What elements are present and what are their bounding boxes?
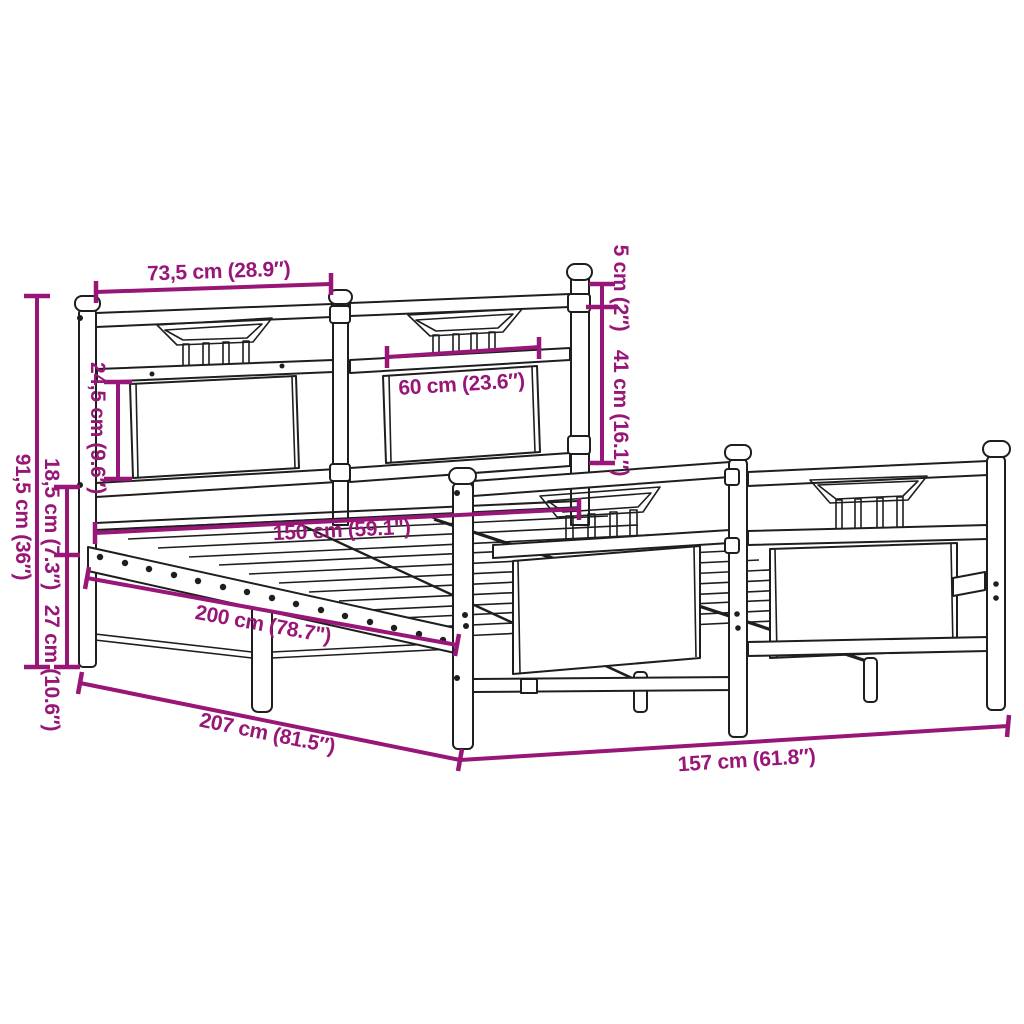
dim-label-outer-width: 157 cm (61.8″) — [677, 745, 816, 777]
diagram-canvas: 73,5 cm (28.9″) 24,5 cm (9.6″) 91,5 cm (… — [0, 0, 1024, 1024]
dim-headboard-bay-width: 73,5 cm (28.9″) — [96, 258, 331, 303]
dim-label-side-rail-height: 18,5 cm (7.3″) — [40, 458, 63, 590]
support-leg — [864, 658, 877, 702]
dim-label-headboard-bay-width: 73,5 cm (28.9″) — [147, 258, 291, 286]
dim-post-and-footboard-height: 5 cm (2″) 41 cm (16.1″) — [586, 245, 632, 477]
dim-side-rail-and-clearance: 18,5 cm (7.3″) 27 cm (10.6″) — [40, 458, 80, 731]
headboard-middle-post — [333, 303, 348, 525]
dim-label-headboard-panel-height: 24,5 cm (9.6″) — [86, 362, 109, 494]
dim-label-platform-clearance: 27 cm (10.6″) — [40, 605, 63, 731]
dim-label-post-above-rail: 5 cm (2″) — [609, 245, 632, 332]
footboard — [449, 441, 1010, 749]
dim-headboard-panel-height: 24,5 cm (9.6″) — [86, 362, 132, 494]
dim-label-footboard-height: 41 cm (16.1″) — [609, 350, 632, 476]
dim-label-headboard-height: 91,5 cm (36″) — [11, 454, 34, 580]
dim-label-inner-width: 150 cm (59.1") — [272, 516, 411, 545]
footboard-middle-post — [729, 459, 747, 737]
dim-label-outer-length: 207 cm (81.5″) — [197, 709, 337, 759]
bed-frame-dimension-diagram: 73,5 cm (28.9″) 24,5 cm (9.6″) 91,5 cm (… — [0, 0, 1024, 1024]
